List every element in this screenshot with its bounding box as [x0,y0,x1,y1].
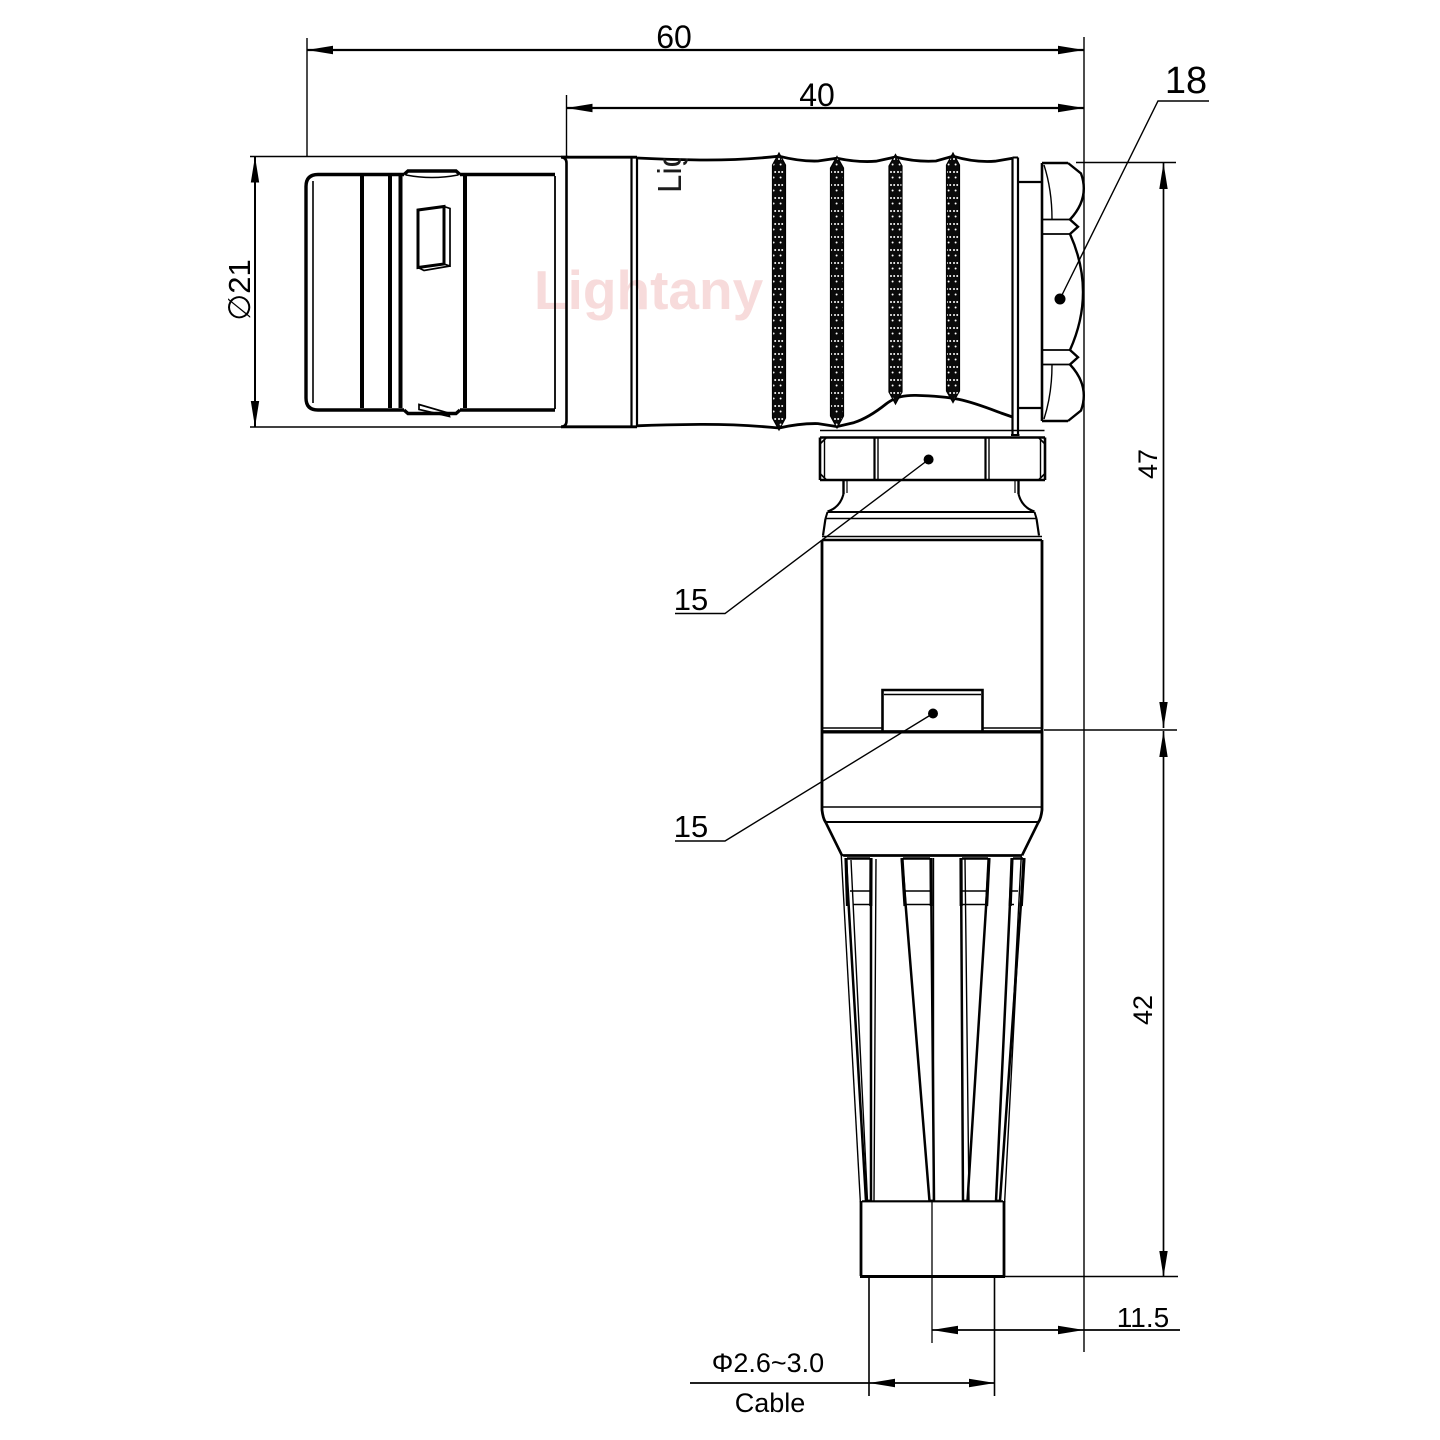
svg-text:Lightany: Lightany [534,259,764,321]
svg-text:Cable: Cable [735,1388,806,1418]
svg-text:15: 15 [674,582,708,617]
svg-text:11.5: 11.5 [1117,1302,1169,1333]
svg-text:15: 15 [674,809,708,844]
svg-text:18: 18 [1165,60,1207,102]
svg-text:Φ2.6~3.0: Φ2.6~3.0 [712,1348,824,1378]
svg-text:47: 47 [1133,449,1163,479]
svg-text:∅21: ∅21 [222,259,257,321]
svg-text:40: 40 [799,77,835,113]
svg-text:60: 60 [656,19,692,55]
svg-text:42: 42 [1128,995,1158,1025]
